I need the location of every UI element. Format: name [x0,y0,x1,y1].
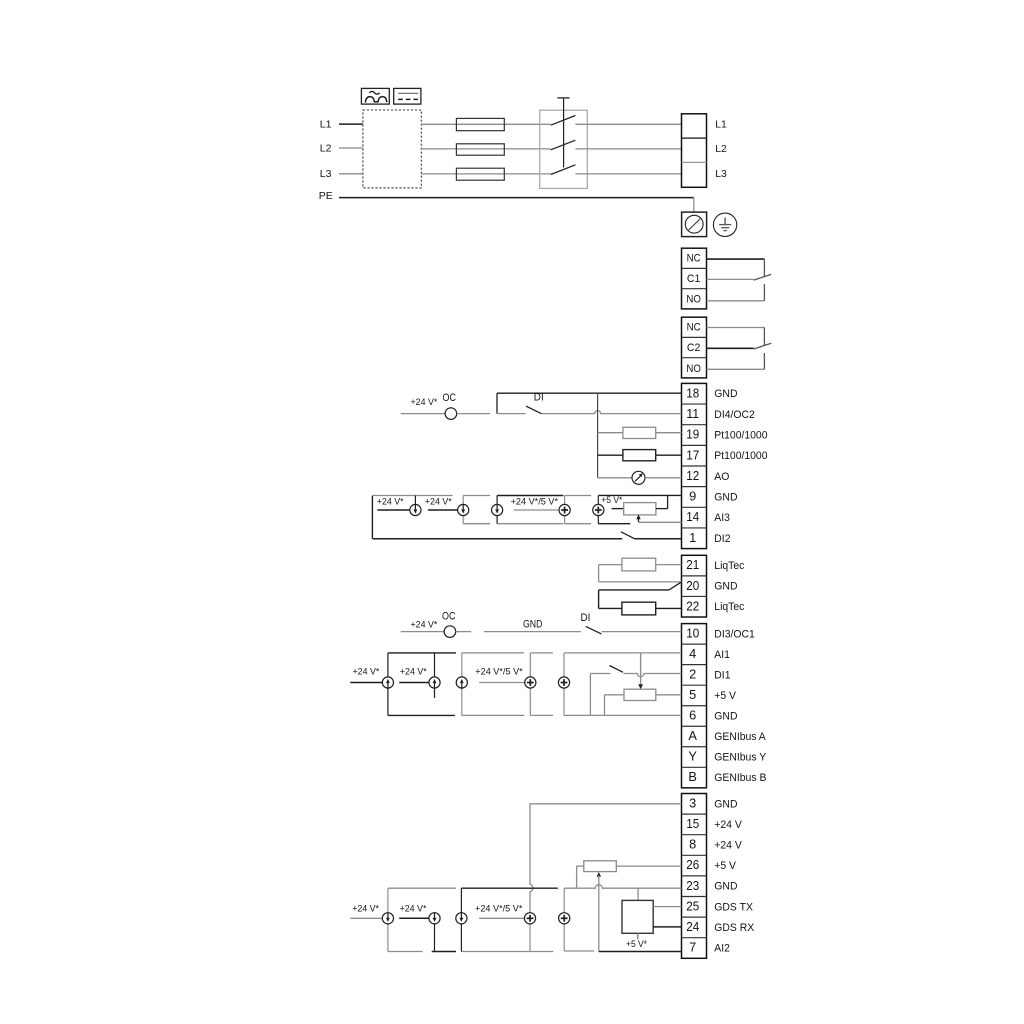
svg-text:A: A [688,728,697,743]
svg-text:GND: GND [714,881,737,893]
svg-text:C2: C2 [687,342,701,354]
svg-text:NC: NC [687,252,701,264]
svg-text:25: 25 [686,898,699,913]
svg-text:10: 10 [686,626,699,641]
svg-text:18: 18 [686,385,699,400]
svg-text:NC: NC [687,322,701,334]
svg-text:DI3/OC1: DI3/OC1 [714,628,755,640]
svg-text:+5 V*: +5 V* [601,495,622,506]
svg-text:20: 20 [686,578,699,593]
svg-text:+24 V*/5 V*: +24 V*/5 V* [475,667,523,678]
svg-text:5: 5 [689,687,696,702]
svg-text:23: 23 [686,878,699,893]
svg-text:B: B [688,769,697,784]
svg-text:+24 V: +24 V [714,819,742,831]
svg-text:DI: DI [534,392,544,404]
svg-text:19: 19 [686,427,699,442]
svg-text:8: 8 [689,837,696,852]
svg-text:2: 2 [689,667,696,682]
svg-text:GDS RX: GDS RX [714,922,754,934]
svg-text:L2: L2 [715,144,727,155]
svg-text:AI2: AI2 [714,943,730,955]
svg-text:L1: L1 [320,119,332,131]
svg-text:+5 V*: +5 V* [626,939,647,950]
svg-text:+24 V*/5 V*: +24 V*/5 V* [475,904,523,915]
svg-text:+5 V: +5 V [714,860,736,872]
svg-text:+24 V*/5 V*: +24 V*/5 V* [511,497,559,508]
svg-text:L1: L1 [715,119,727,130]
svg-text:NO: NO [686,363,701,375]
svg-text:Pt100/1000: Pt100/1000 [714,450,767,462]
svg-text:DI: DI [581,612,591,624]
svg-text:24: 24 [686,919,699,934]
svg-text:GND: GND [714,388,737,400]
svg-text:11: 11 [686,406,699,421]
svg-text:C1: C1 [687,273,701,285]
svg-text:26: 26 [686,857,699,872]
svg-text:LiqTec: LiqTec [714,601,744,613]
svg-text:GND: GND [523,619,543,631]
svg-text:AI1: AI1 [714,649,730,661]
svg-text:OC: OC [442,611,456,623]
svg-text:4: 4 [689,646,696,661]
svg-text:DI1: DI1 [714,669,730,681]
svg-text:12: 12 [686,468,699,483]
svg-text:GND: GND [714,581,737,593]
svg-text:AI3: AI3 [714,512,730,524]
svg-text:+24 V*: +24 V* [353,667,380,678]
svg-text:LiqTec: LiqTec [714,560,744,572]
svg-text:+24 V*: +24 V* [352,904,379,915]
svg-text:+24 V*: +24 V* [425,497,452,508]
svg-text:GND: GND [714,798,737,810]
svg-text:17: 17 [686,447,699,462]
svg-text:PE: PE [319,190,333,202]
svg-text:15: 15 [686,816,699,831]
svg-text:1: 1 [689,530,696,545]
svg-text:L3: L3 [715,169,727,180]
svg-text:+24 V*: +24 V* [411,397,438,408]
svg-text:+24 V*: +24 V* [400,904,427,915]
svg-text:22: 22 [686,598,699,613]
svg-text:14: 14 [686,509,699,524]
svg-text:L2: L2 [320,142,332,154]
svg-text:GENIbus Y: GENIbus Y [714,752,766,764]
svg-text:+5 V: +5 V [714,690,736,702]
svg-text:GENIbus B: GENIbus B [714,772,766,784]
svg-text:L3: L3 [320,168,332,180]
svg-text:GND: GND [714,491,737,503]
svg-text:+24 V*: +24 V* [377,497,404,508]
svg-text:+24 V*: +24 V* [411,620,438,631]
svg-text:OC: OC [443,392,457,404]
svg-text:NO: NO [686,294,701,306]
svg-text:GDS TX: GDS TX [714,901,753,913]
svg-text:DI4/OC2: DI4/OC2 [714,409,755,421]
svg-text:21: 21 [686,557,699,572]
svg-text:AO: AO [714,471,729,483]
svg-text:+24 V*: +24 V* [400,667,427,678]
svg-text:Y: Y [688,749,697,764]
svg-text:6: 6 [689,708,696,723]
svg-text:GENIbus A: GENIbus A [714,731,766,743]
svg-text:7: 7 [689,940,696,955]
svg-text:DI2: DI2 [714,533,730,545]
svg-text:Pt100/1000: Pt100/1000 [714,430,767,442]
svg-text:GND: GND [714,711,737,723]
svg-text:+24 V: +24 V [714,840,742,852]
svg-text:9: 9 [689,489,696,504]
svg-text:3: 3 [689,795,696,810]
